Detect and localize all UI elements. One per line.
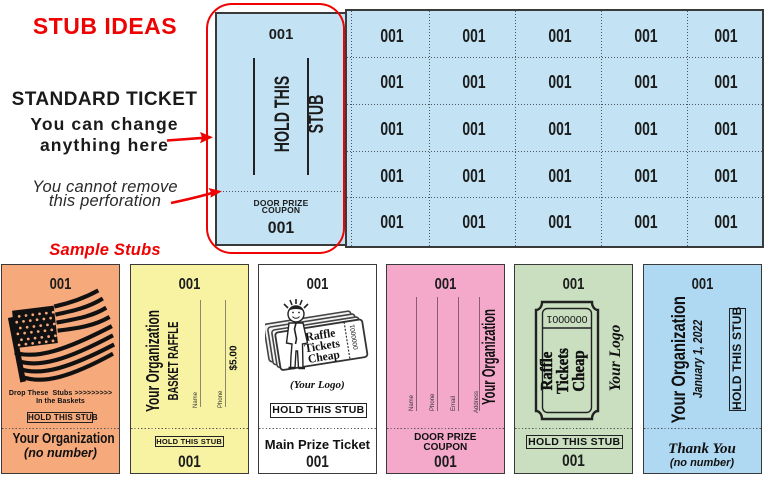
svg-text:Cheap: Cheap [570, 350, 588, 391]
svg-text:0000001: 0000001 [546, 313, 587, 325]
